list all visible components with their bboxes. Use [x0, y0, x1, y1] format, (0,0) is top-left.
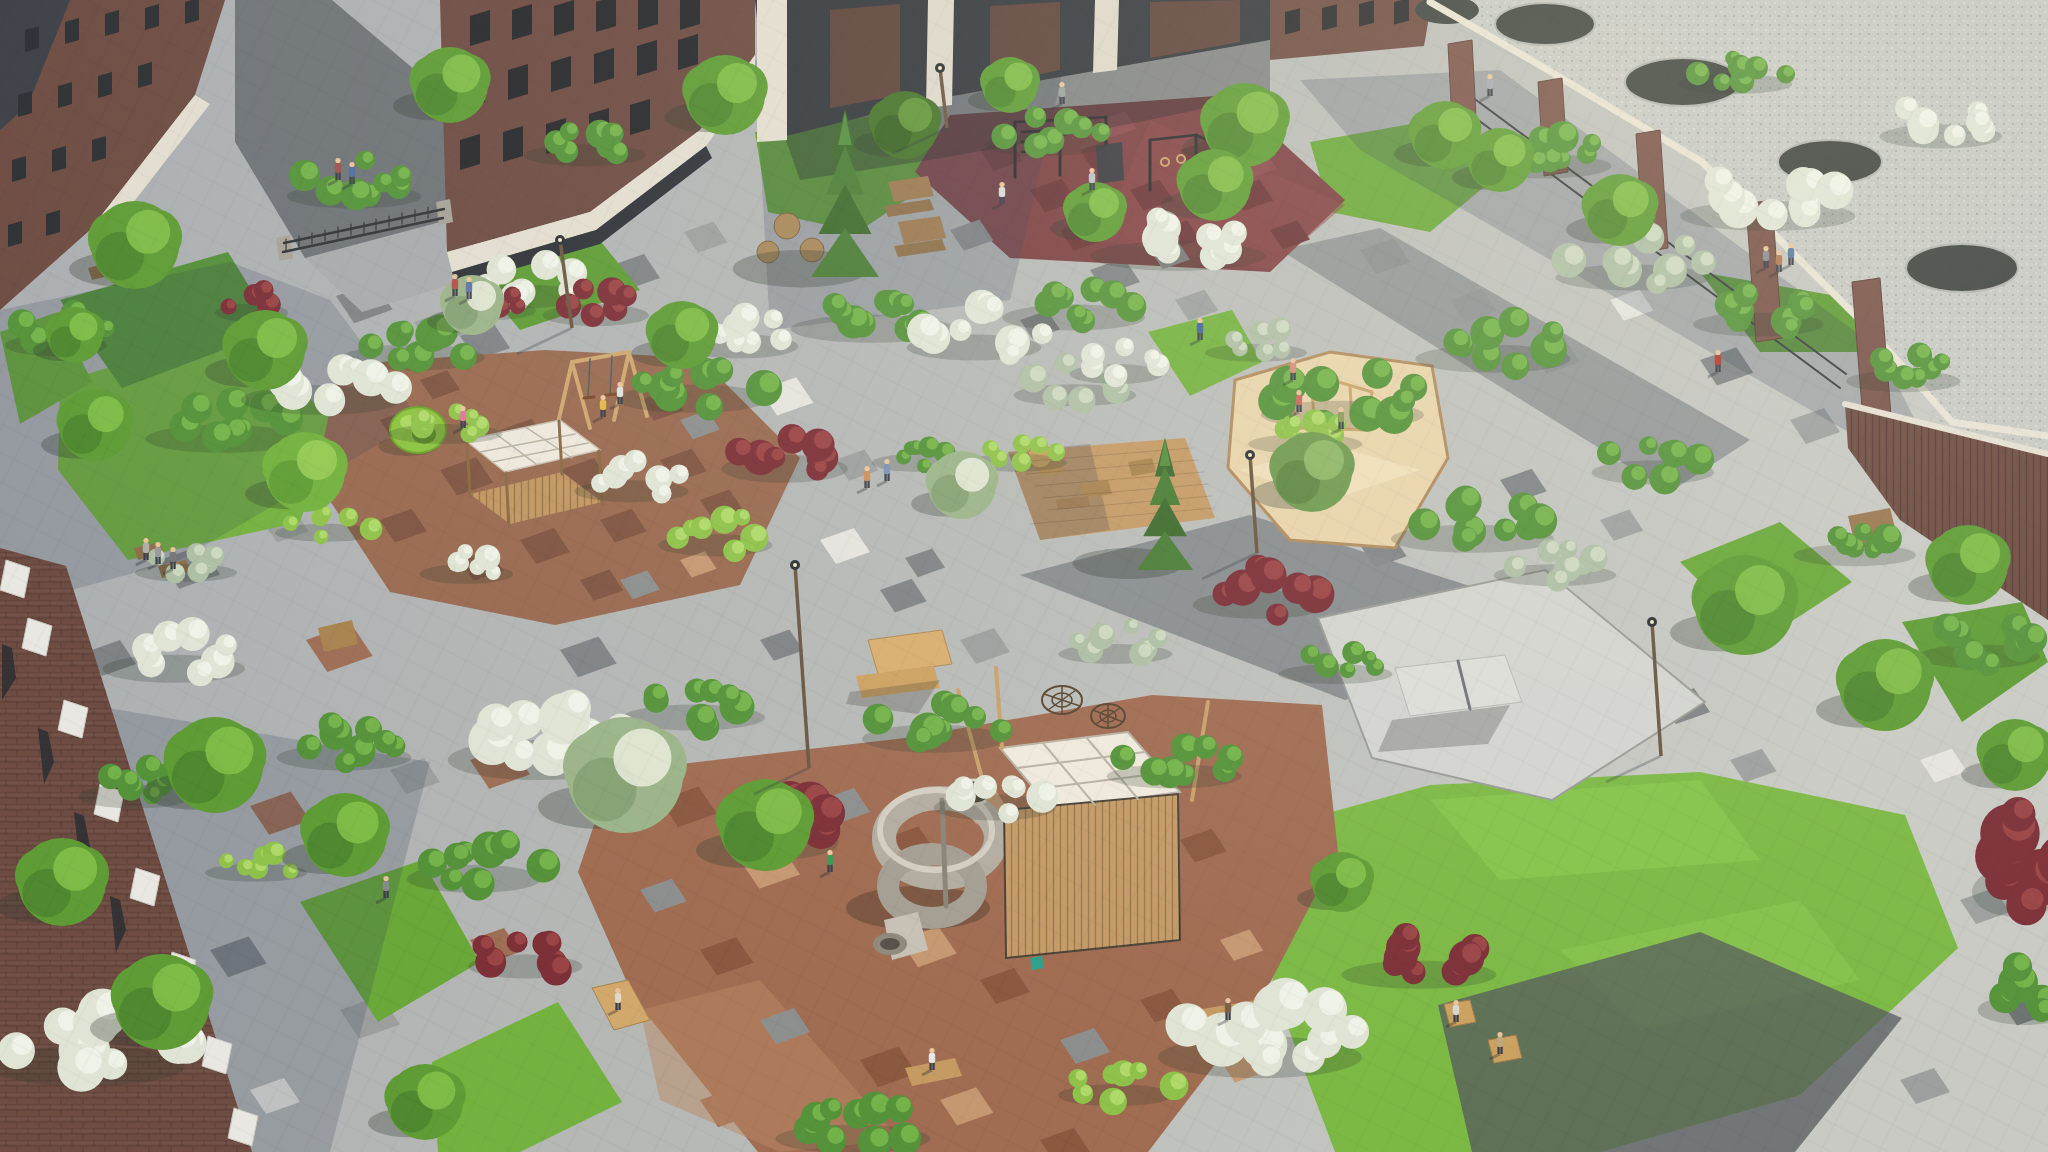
courtyard-scene-canvas [0, 0, 2048, 1152]
courtyard-aerial-render [0, 0, 2048, 1152]
green-toy [1030, 956, 1044, 970]
slide-exit-mouth [873, 933, 907, 955]
